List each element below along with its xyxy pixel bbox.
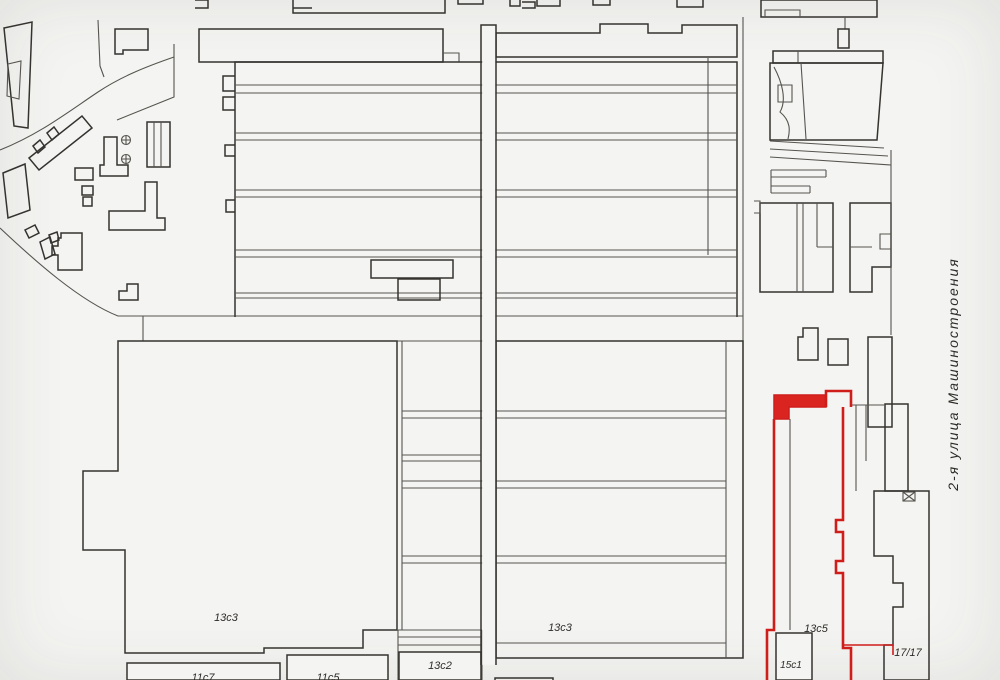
label-13s3-center: 13с3 [548, 622, 573, 634]
north-slab-step [443, 53, 459, 62]
survey-marker-icon [122, 136, 131, 164]
label-11s5: 11с5 [316, 672, 340, 680]
small-building-north [115, 29, 148, 54]
building-13s3-center-inner-lines [496, 341, 726, 658]
label-13s5: 13с5 [804, 623, 829, 635]
label-11s7: 11с7 [191, 672, 215, 680]
small-building-b [828, 339, 848, 365]
courtyard-top-bar [773, 51, 883, 63]
highlight-outline-left [767, 419, 774, 680]
street-name-label: 2-я улица Машиностроения [945, 257, 961, 492]
tall-building-north [868, 337, 892, 427]
boundary-line-northwest [98, 20, 104, 77]
corridor-mask [482, 26, 495, 665]
mid-block-building [754, 201, 833, 292]
small-sheds [25, 168, 93, 259]
small-house-shape [119, 284, 138, 300]
building-13s3-west-outline [83, 341, 397, 653]
tall-building-south [885, 404, 908, 491]
site-plan-map: 13с3 13с3 13с2 13с5 15с1 17/17 11с7 11с5… [0, 0, 1000, 680]
stairs-hatch-icon [903, 492, 915, 501]
stub-building [838, 29, 849, 48]
road-fork-line [117, 44, 174, 120]
inner-step-structures [371, 260, 453, 300]
workshop-division-lines-lower [402, 411, 726, 563]
striped-building [147, 122, 170, 167]
tilted-building-long [29, 116, 92, 170]
highlight-outline-right [826, 391, 851, 680]
north-slab-building [199, 29, 443, 62]
label-17-17: 17/17 [894, 647, 922, 659]
building-13s3-center-outline [496, 341, 743, 658]
small-building-a [798, 328, 818, 360]
tilted-building-west [3, 164, 30, 218]
mid-block-east-details [850, 234, 891, 249]
northwest-building-cluster [3, 22, 170, 300]
slanted-strips [770, 141, 891, 165]
stepped-bands [771, 170, 826, 193]
t-shaped-building [109, 182, 165, 230]
north-building-notch [765, 10, 800, 17]
survey-building [100, 137, 128, 176]
lower-buildings [83, 341, 743, 680]
west-edge-bays [223, 76, 235, 212]
highlight-solid-corner [774, 395, 826, 419]
courtyard-body-details [774, 63, 806, 139]
central-industrial-complex [118, 0, 743, 658]
street-front-buildings [754, 0, 929, 680]
top-edge-cutoff-buildings [195, 0, 703, 13]
label-13s3-west: 13с3 [214, 612, 239, 624]
plan-canvas: 13с3 13с3 13с2 13с5 15с1 17/17 11с7 11с5… [0, 0, 1000, 680]
road-north-curve [0, 57, 174, 150]
north-east-slab-building [496, 24, 737, 57]
north-building-cutoff [761, 0, 877, 17]
tilted-building-long-annex [33, 127, 59, 153]
label-15s1: 15с1 [780, 660, 802, 671]
notched-building [52, 233, 82, 270]
gallery-corridor [481, 25, 496, 665]
building-15s1-outline [776, 633, 812, 680]
map-labels: 13с3 13с3 13с2 13с5 15с1 17/17 11с7 11с5… [191, 257, 961, 680]
label-13s2: 13с2 [428, 660, 452, 672]
